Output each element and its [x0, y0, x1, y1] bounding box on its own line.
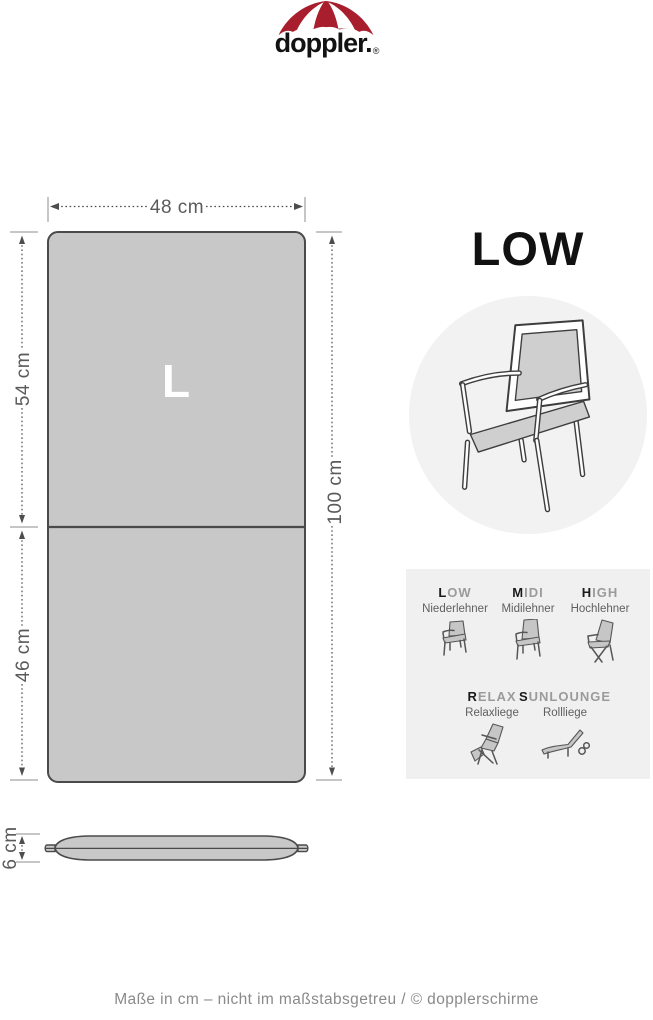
chair-type-matrix: LOW Niederlehner MIDI Midilehner [406, 569, 650, 779]
total-height-label: 100 cm [325, 459, 346, 524]
dimension-thickness: 6 cm [0, 826, 25, 869]
product-diagram-page: doppler.® 48 cm L [0, 0, 653, 1020]
top-section-label: 54 cm [13, 352, 34, 406]
dimension-bottom-section: 46 cm [13, 531, 34, 777]
type-item-sunlounge: SUNLOUNGE Rollliege [505, 689, 625, 768]
type-item-high: HIGH Hochlehner [554, 585, 646, 668]
type-code: SUNLOUNGE [505, 689, 625, 704]
thickness-label: 6 cm [0, 826, 21, 869]
type-name: Rollliege [505, 707, 625, 719]
registered-mark: ® [373, 46, 380, 56]
dimension-width: 48 cm [50, 197, 303, 218]
cushion-dimension-drawing: 48 cm L 54 cm 46 cm 100 cm [0, 190, 360, 880]
chair-midi-icon [510, 619, 546, 661]
low-back-armchair-icon [409, 296, 647, 534]
type-name: Hochlehner [554, 603, 646, 615]
chair-low-icon [437, 619, 473, 657]
dimension-top-section: 54 cm [13, 236, 34, 524]
type-title: LOW [406, 226, 650, 272]
brand-wordmark: doppler.® [0, 29, 653, 63]
bottom-section-label: 46 cm [13, 628, 34, 682]
sunlounger-icon [539, 723, 591, 763]
dimension-total-height: 100 cm [325, 236, 346, 777]
size-letter: L [162, 355, 190, 407]
type-illustration-circle [409, 296, 647, 534]
footer-note: Maße in cm – nicht im maßstabsgetreu / ©… [0, 991, 653, 1009]
width-label: 48 cm [150, 197, 204, 218]
type-code: HIGH [554, 585, 646, 600]
cushion-side-view [45, 836, 308, 860]
cushion-top-view [48, 232, 305, 782]
chair-high-icon [580, 619, 620, 663]
